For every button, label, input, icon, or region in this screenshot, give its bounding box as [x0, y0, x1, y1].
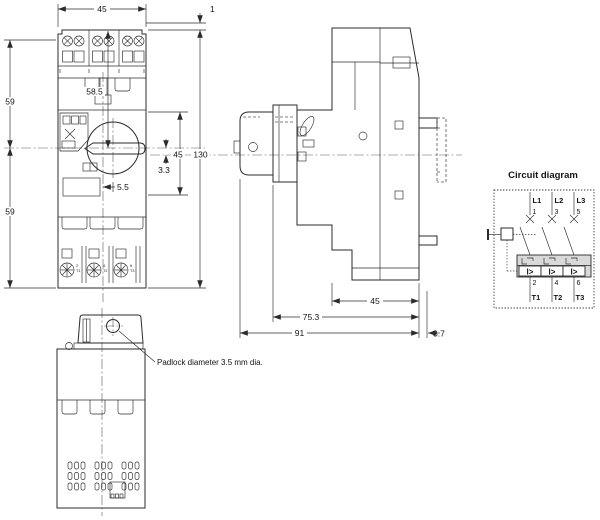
circuit-pole-2: L2 3 I> 4 T2 — [541, 192, 563, 302]
pole-line-label: L1 — [533, 196, 542, 205]
dim-45-right: 45 — [173, 150, 183, 160]
pole-in-label: 1 — [533, 209, 537, 216]
overcurrent-trip-symbol: I> — [549, 268, 556, 277]
dim-3-3: 3.3 — [158, 165, 170, 175]
pole-in-label: 5 — [577, 209, 581, 216]
switch-blade — [542, 227, 552, 255]
dim-3-7: 3.7 — [433, 329, 445, 339]
dim-1: 1 — [210, 4, 215, 14]
terminal-label: 6 — [130, 264, 132, 268]
breaker-bottom-body — [57, 349, 145, 508]
centerlines — [4, 72, 462, 516]
circuit-diagram: Circuit diagram L1 1 I> — [488, 170, 594, 308]
side-view-dimensions: 45 75.3 91 3.7 — [240, 179, 445, 339]
pole-t-label: T1 — [532, 293, 541, 302]
top-terminal-block — [58, 30, 146, 73]
pole-line-label: L3 — [577, 196, 586, 205]
terminal-label: T1 — [76, 269, 80, 273]
pole-t-label: T2 — [554, 293, 563, 302]
din-rail — [419, 118, 446, 245]
pole-in-label: 3 — [555, 209, 559, 216]
terminal-label: 2 — [76, 264, 78, 268]
bottom-view-drawing: Padlock diameter 3.5 mm dia. — [57, 315, 263, 508]
terminal-label: T2 — [103, 269, 107, 273]
dim-45-side: 45 — [370, 296, 380, 306]
dim-45-top: 45 — [97, 4, 107, 14]
lock-slot — [297, 114, 316, 137]
overcurrent-trip-symbol: I> — [527, 268, 534, 277]
side-view-drawing: 45 75.3 91 3.7 — [234, 28, 446, 339]
dim-91: 91 — [295, 328, 305, 338]
technical-drawing-page: 2 T1 4 T2 6 T3 45 1 130 — [0, 0, 600, 520]
switch-blade — [520, 227, 530, 255]
overcurrent-trip-symbol: I> — [571, 268, 578, 277]
front-view-dimensions: 45 1 130 45 3.3 5.5 — [3, 4, 215, 288]
terminal-label: T3 — [130, 269, 134, 273]
circuit-diagram-title: Circuit diagram — [508, 170, 578, 181]
control-cluster — [60, 113, 88, 151]
pole-out-label: 2 — [533, 280, 537, 287]
breaker-dimension-drawing: 2 T1 4 T2 6 T3 45 1 130 — [0, 0, 600, 520]
lower-section: 2 T1 4 T2 6 T3 — [58, 217, 146, 283]
padlock-hole — [104, 317, 123, 336]
dim-59-lower: 59 — [5, 207, 15, 217]
switch-blade — [564, 227, 574, 255]
pole-out-label: 6 — [577, 280, 581, 287]
pole-t-label: T3 — [576, 293, 585, 302]
pole-line-label: L2 — [555, 196, 564, 205]
terminal-label: 4 — [103, 264, 105, 268]
circuit-pole-1: L1 1 I> 2 T1 — [519, 192, 541, 302]
nameplate-window — [63, 178, 100, 196]
dim-5-5: 5.5 — [117, 182, 129, 192]
leader-line — [119, 331, 155, 362]
dim-58-5: 58.5 — [86, 87, 103, 97]
dim-130: 130 — [193, 150, 207, 160]
knob-flange — [273, 105, 297, 182]
rotary-knob-side — [234, 112, 273, 175]
breaker-side-body — [297, 28, 419, 280]
pole-out-label: 4 — [555, 280, 559, 287]
padlock-note: Padlock diameter 3.5 mm dia. — [157, 358, 263, 367]
dim-75-3: 75.3 — [303, 312, 320, 322]
knob-handle — [85, 143, 145, 154]
dim-59-upper: 59 — [5, 97, 15, 107]
circuit-boundary — [494, 190, 594, 308]
circuit-pole-3: L3 5 I> 6 T3 — [563, 192, 585, 302]
front-view-drawing: 2 T1 4 T2 6 T3 45 1 130 — [3, 4, 215, 288]
